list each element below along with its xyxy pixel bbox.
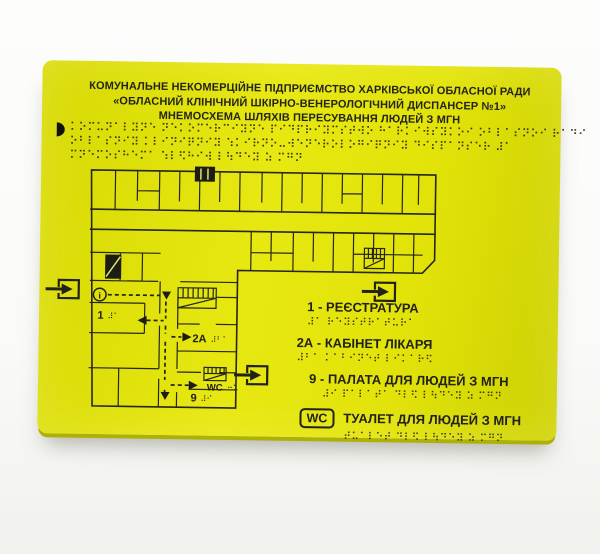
legend-braille: ⠞⠥⠁⠇⠑⠞ ⠙⠇⠫ ⠇⠳⠙⠑⠽ ⠵ ⠍⠛⠝ (299, 430, 563, 446)
info-point-label: i (98, 291, 101, 301)
stairs-icon (178, 288, 216, 309)
route-arrow-icon (189, 381, 198, 390)
exit-arrow-icon (362, 282, 395, 301)
legend: 1 - РЕЄСТРАТУРА ⠼⠁ ⠗⠑⠽⠎⠞⠗⠁⠞⠥⠗⠁ 2А - КАБІ… (295, 300, 565, 454)
route-arrow-icon (162, 291, 171, 299)
legend-label: РЕЄСТРАТУРА (326, 299, 419, 315)
exit-arrow-icon (45, 280, 78, 299)
room-dividers (115, 170, 419, 214)
legend-braille: ⠼⠁ ⠗⠑⠽⠎⠞⠗⠁⠞⠥⠗⠁ (307, 316, 565, 332)
tactile-sign-plate: КОМУНАЛЬНЕ НЕКОМЕРЦІЙНЕ ПІДПРИЄМСТВО ХАР… (37, 60, 561, 441)
legend-braille: ⠼⠃⠁ ⠅⠁⠃⠊⠝⠑⠞ ⠇⠊⠅⠁⠗⠫ (296, 352, 564, 368)
room-braille-9: ⠼⠊ (201, 394, 213, 403)
room-braille-1: ⠼⠁ (107, 312, 119, 321)
room-label-2a: 2А (192, 333, 206, 345)
room-label-1: 1 (97, 310, 103, 322)
route-arrow-icon (160, 392, 169, 400)
exit-arrow-icon (234, 366, 267, 385)
room-braille-2a: ⠼⠃⠁ (210, 335, 228, 344)
braille-start-marker-icon (57, 122, 65, 136)
room-label-9: 9 (190, 392, 196, 404)
legend-item-registry: 1 - РЕЄСТРАТУРА ⠼⠁ ⠗⠑⠽⠎⠞⠗⠁⠞⠥⠗⠁ (297, 300, 565, 332)
room-label-wc: WC (207, 383, 223, 394)
legend-item-toilet: WC ТУАЛЕТ ДЛЯ ЛЮДЕЙ З МГН ⠞⠥⠁⠇⠑⠞ ⠙⠇⠫ ⠇⠳⠙… (295, 408, 563, 446)
sign-photo: КОМУНАЛЬНЕ НЕКОМЕРЦІЙНЕ ПІДПРИЄМСТВО ХАР… (0, 0, 600, 554)
elevator-icon (105, 254, 121, 278)
room-dividers (251, 232, 423, 274)
route-arrow-icon (137, 316, 146, 325)
wc-box-icon: WC (299, 408, 334, 429)
room-braille-wc: ⠒⠥ (227, 384, 239, 393)
legend-label: КАБІНЕТ ЛІКАРЯ (325, 335, 433, 352)
info-point-icon: i (93, 288, 106, 301)
corridor-walls (91, 209, 436, 234)
legend-label: ТУАЛЕТ ДЛЯ ЛЮДЕЙ З МГН (343, 412, 521, 429)
legend-label: ПАЛАТА ДЛЯ ЛЮДЕЙ З МГН (328, 371, 509, 389)
route-arrow-icon (182, 332, 191, 341)
legend-item-ward: 9 - ПАЛАТА ДЛЯ ЛЮДЕЙ З МГН ⠼⠊ ⠏⠁⠇⠁⠞⠁ ⠙⠇⠫… (296, 372, 564, 404)
stairs-icon (364, 248, 384, 268)
stairs-icon (195, 166, 215, 181)
legend-key: 2А (297, 335, 314, 350)
legend-braille: ⠼⠊ ⠏⠁⠇⠁⠞⠁ ⠙⠇⠫ ⠇⠳⠙⠑⠽ ⠵ ⠍⠛⠝ (309, 388, 564, 404)
legend-item-doctor-office: 2А - КАБІНЕТ ЛІКАРЯ ⠼⠃⠁ ⠅⠁⠃⠊⠝⠑⠞ ⠇⠊⠅⠁⠗⠫ (296, 336, 564, 368)
stairs-icon (204, 367, 226, 380)
